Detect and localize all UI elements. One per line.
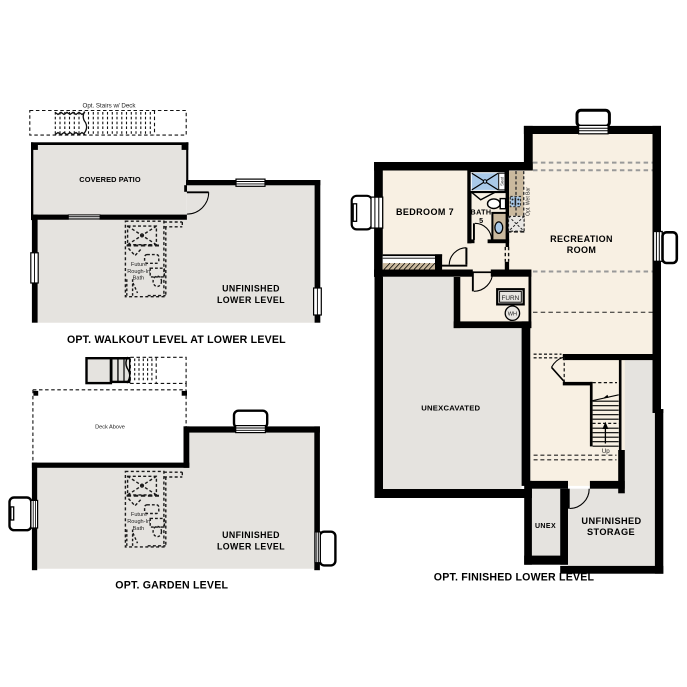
svg-text:OPT. GARDEN LEVEL: OPT. GARDEN LEVEL <box>115 580 228 592</box>
svg-text:Up: Up <box>602 448 610 455</box>
svg-text:OPT. FINISHED LOWER LEVEL: OPT. FINISHED LOWER LEVEL <box>434 572 595 584</box>
svg-text:STORAGE: STORAGE <box>587 527 635 537</box>
svg-text:Future: Future <box>131 262 147 268</box>
svg-text:Rough-In: Rough-In <box>127 519 150 525</box>
svg-text:Bath: Bath <box>133 276 145 282</box>
svg-text:Opt. Wet Bar: Opt. Wet Bar <box>526 187 532 216</box>
svg-text:RECREATION: RECREATION <box>550 234 613 244</box>
svg-text:LOWER LEVEL: LOWER LEVEL <box>217 295 285 305</box>
svg-text:UNEX: UNEX <box>535 523 556 530</box>
svg-text:Seat: Seat <box>500 176 505 186</box>
svg-text:OPT. WALKOUT LEVEL AT LOWER LE: OPT. WALKOUT LEVEL AT LOWER LEVEL <box>67 334 286 346</box>
svg-text:UNFINISHED: UNFINISHED <box>222 530 280 540</box>
svg-text:Bath: Bath <box>133 526 145 532</box>
svg-text:Opt. Stairs w/ Deck: Opt. Stairs w/ Deck <box>83 103 137 110</box>
svg-text:UNEXCAVATED: UNEXCAVATED <box>421 404 480 413</box>
svg-text:LOWER LEVEL: LOWER LEVEL <box>217 542 285 552</box>
svg-text:Deck Above: Deck Above <box>95 425 125 431</box>
svg-text:ROOM: ROOM <box>567 245 597 255</box>
svg-text:Future: Future <box>131 512 147 518</box>
svg-text:COVERED PATIO: COVERED PATIO <box>79 175 141 184</box>
svg-text:Rough-In: Rough-In <box>127 269 150 275</box>
svg-text:BEDROOM 7: BEDROOM 7 <box>396 207 454 217</box>
svg-text:FURN: FURN <box>502 295 520 302</box>
svg-text:WH: WH <box>508 312 517 318</box>
svg-text:UNFINISHED: UNFINISHED <box>222 284 280 294</box>
svg-text:UNFINISHED: UNFINISHED <box>581 516 641 526</box>
